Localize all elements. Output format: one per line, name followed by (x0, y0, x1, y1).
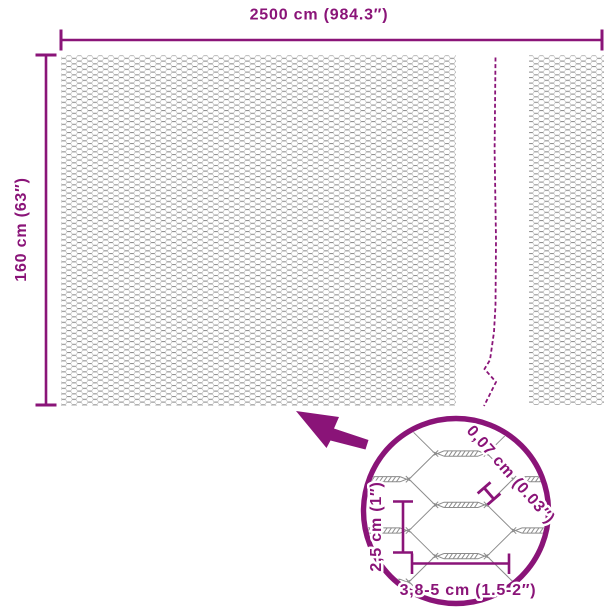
svg-text:2500 cm (984.3″): 2500 cm (984.3″) (250, 7, 389, 24)
svg-text:2,5 cm (1″): 2,5 cm (1″) (368, 481, 385, 571)
svg-text:3,8-5 cm (1.5-2″): 3,8-5 cm (1.5-2″) (400, 582, 537, 599)
svg-text:160 cm (63″): 160 cm (63″) (13, 177, 30, 281)
